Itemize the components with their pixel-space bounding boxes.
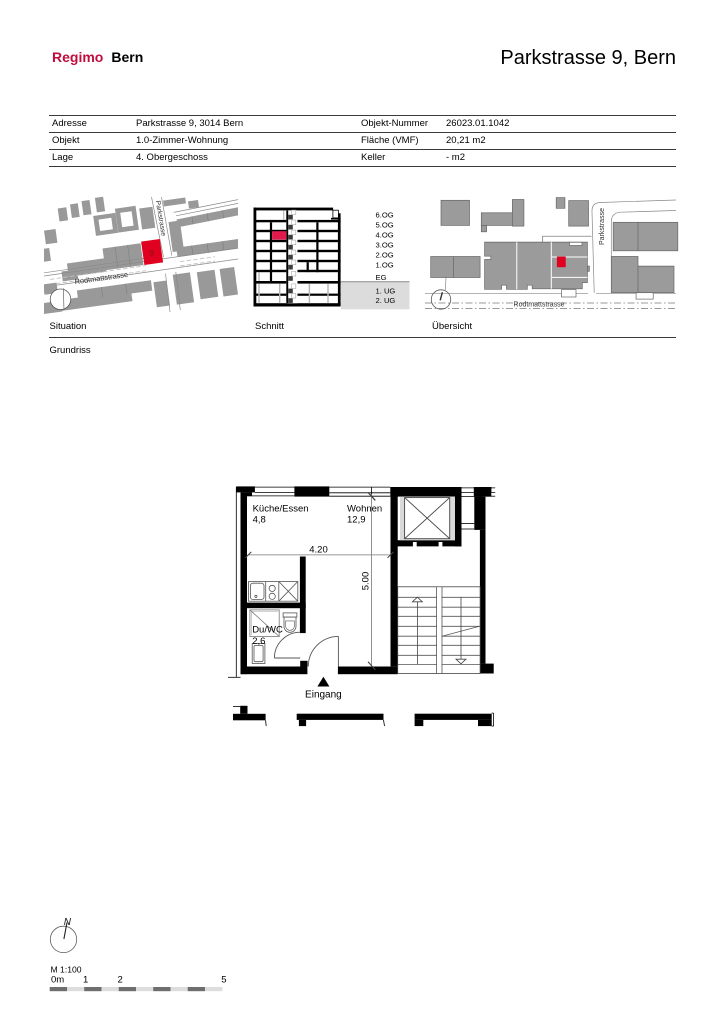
svg-text:2. UG: 2. UG — [376, 296, 396, 305]
svg-text:2.OG: 2.OG — [376, 251, 394, 260]
svg-text:4.OG: 4.OG — [376, 231, 394, 240]
svg-text:12,9: 12,9 — [347, 514, 366, 525]
svg-text:1: 1 — [83, 975, 88, 986]
svg-text:Parkstrasse: Parkstrasse — [599, 208, 606, 245]
svg-text:3.OG: 3.OG — [376, 241, 394, 250]
svg-text:5: 5 — [221, 975, 226, 986]
svg-text:1.OG: 1.OG — [376, 261, 394, 270]
svg-text:2: 2 — [118, 975, 123, 986]
svg-text:N: N — [64, 917, 72, 928]
svg-text:Du/WC: Du/WC — [252, 624, 283, 635]
svg-text:EG: EG — [376, 273, 387, 282]
svg-text:2,6: 2,6 — [252, 636, 265, 647]
svg-text:5.00: 5.00 — [360, 572, 371, 591]
svg-text:Rodtmattstrasse: Rodtmattstrasse — [514, 302, 565, 309]
svg-text:5.OG: 5.OG — [376, 221, 394, 230]
svg-text:6.OG: 6.OG — [376, 211, 394, 220]
svg-text:M 1:100: M 1:100 — [51, 964, 82, 974]
svg-text:Küche/Essen: Küche/Essen — [253, 503, 309, 514]
svg-text:0m: 0m — [51, 975, 64, 986]
svg-text:4,8: 4,8 — [253, 514, 266, 525]
svg-text:4.20: 4.20 — [309, 545, 328, 556]
svg-text:Eingang: Eingang — [305, 690, 342, 701]
svg-text:1. UG: 1. UG — [376, 286, 396, 295]
svg-text:Wohnen: Wohnen — [347, 503, 382, 514]
